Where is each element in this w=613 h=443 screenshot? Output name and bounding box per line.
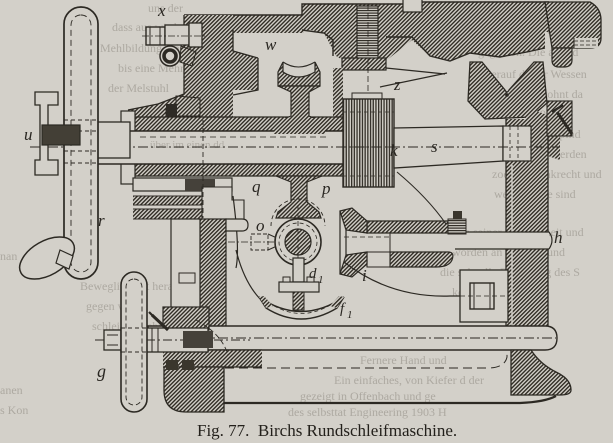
svg-text:s Kon: s Kon [0,403,28,417]
svg-text:der Melstuhl: der Melstuhl [108,81,170,95]
svg-text:q: q [252,177,261,196]
svg-text:g: g [97,361,106,381]
svg-text:Ein einfaches, von Kiefer d de: Ein einfaches, von Kiefer d der [334,373,484,387]
svg-text:u: u [24,125,33,144]
svg-text:des selbsttat Engineering 1903: des selbsttat Engineering 1903 H [288,405,447,419]
svg-text:nan: nan [0,249,17,263]
svg-text:anen: anen [0,383,23,397]
svg-text:p: p [321,179,331,198]
svg-text:1: 1 [347,309,353,321]
svg-text:gezeigt in Offenbach und ge: gezeigt in Offenbach und ge [300,389,436,403]
svg-text:z: z [393,75,401,94]
svg-text:h: h [554,228,563,247]
svg-text:s: s [431,137,438,156]
svg-text:Fig. 77. Birchs Rundschleifma: Fig. 77. Birchs Rundschleifmaschine. [197,421,457,440]
svg-text:k: k [390,141,398,160]
svg-text:i: i [362,266,367,285]
svg-text:x: x [157,1,166,20]
svg-text:o: o [256,216,265,235]
svg-text:1: 1 [318,274,324,286]
svg-text:über im einen dd: über im einen dd [150,139,225,151]
svg-text:d: d [309,266,317,282]
svg-text:w: w [265,35,277,54]
svg-text:r: r [98,211,105,230]
svg-text:Fernere Hand und: Fernere Hand und [360,353,447,367]
